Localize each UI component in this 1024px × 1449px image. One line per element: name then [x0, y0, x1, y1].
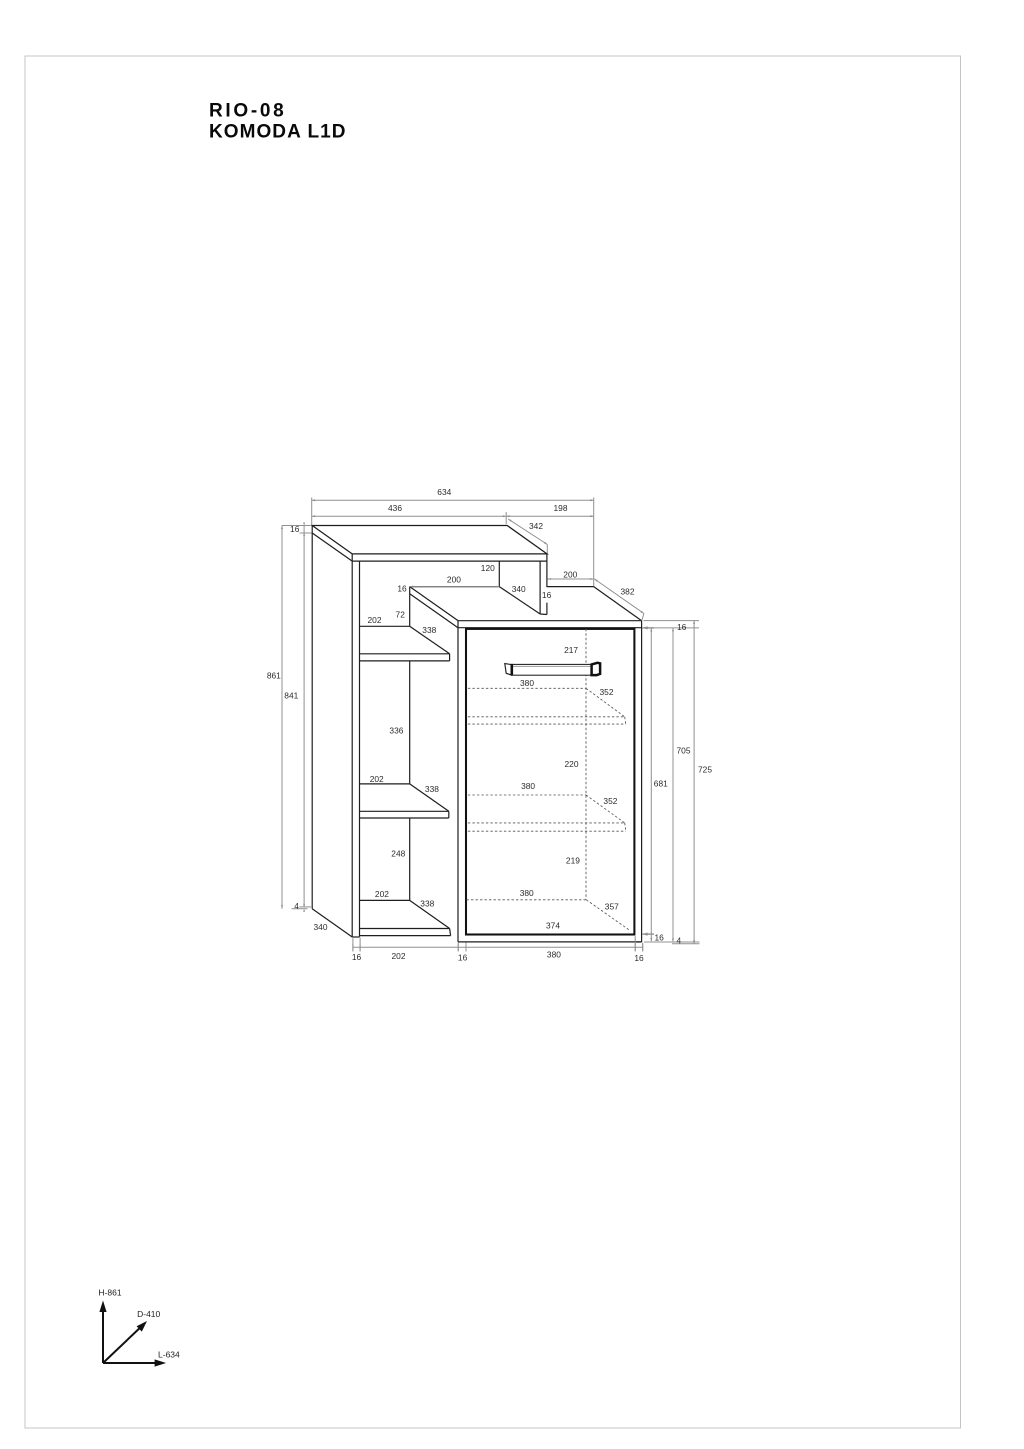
svg-text:H-861: H-861: [98, 1288, 121, 1298]
svg-text:72: 72: [396, 609, 406, 619]
svg-text:336: 336: [389, 726, 403, 736]
svg-text:16: 16: [542, 590, 552, 600]
svg-text:16: 16: [677, 622, 687, 632]
svg-text:725: 725: [698, 764, 712, 774]
svg-text:202: 202: [368, 615, 382, 625]
svg-text:380: 380: [521, 781, 535, 791]
svg-text:200: 200: [563, 570, 577, 580]
svg-text:220: 220: [565, 759, 579, 769]
svg-text:202: 202: [375, 889, 389, 899]
svg-text:382: 382: [621, 586, 635, 596]
svg-text:340: 340: [512, 584, 526, 594]
svg-text:16: 16: [290, 524, 300, 534]
svg-text:861: 861: [267, 671, 281, 681]
svg-text:16: 16: [634, 953, 644, 963]
svg-text:L-634: L-634: [158, 1350, 180, 1360]
svg-text:120: 120: [481, 563, 495, 573]
svg-text:681: 681: [654, 778, 668, 788]
svg-text:16: 16: [352, 952, 362, 962]
svg-text:841: 841: [284, 691, 298, 701]
svg-text:16: 16: [458, 953, 468, 963]
svg-text:380: 380: [520, 888, 534, 898]
svg-text:219: 219: [566, 856, 580, 866]
svg-text:374: 374: [546, 920, 560, 930]
svg-text:634: 634: [437, 487, 451, 497]
svg-text:338: 338: [425, 784, 439, 794]
svg-text:342: 342: [529, 521, 543, 531]
svg-text:352: 352: [603, 796, 617, 806]
svg-text:338: 338: [420, 899, 434, 909]
svg-text:4: 4: [677, 936, 682, 946]
svg-text:338: 338: [422, 625, 436, 635]
svg-text:4: 4: [294, 901, 299, 911]
svg-text:RIO-08: RIO-08: [209, 101, 286, 122]
svg-text:KOMODA L1D: KOMODA L1D: [209, 122, 347, 143]
svg-text:352: 352: [600, 687, 614, 697]
svg-text:380: 380: [547, 949, 561, 959]
svg-text:357: 357: [605, 902, 619, 912]
svg-text:380: 380: [520, 678, 534, 688]
svg-text:D-410: D-410: [137, 1309, 160, 1319]
svg-text:16: 16: [397, 584, 407, 594]
svg-text:16: 16: [655, 933, 665, 943]
svg-text:202: 202: [370, 774, 384, 784]
svg-text:340: 340: [314, 922, 328, 932]
svg-text:217: 217: [564, 645, 578, 655]
svg-text:705: 705: [677, 746, 691, 756]
svg-text:436: 436: [388, 503, 402, 513]
svg-text:198: 198: [554, 503, 568, 513]
svg-text:200: 200: [447, 575, 461, 585]
svg-text:248: 248: [391, 849, 405, 859]
svg-text:202: 202: [392, 951, 406, 961]
